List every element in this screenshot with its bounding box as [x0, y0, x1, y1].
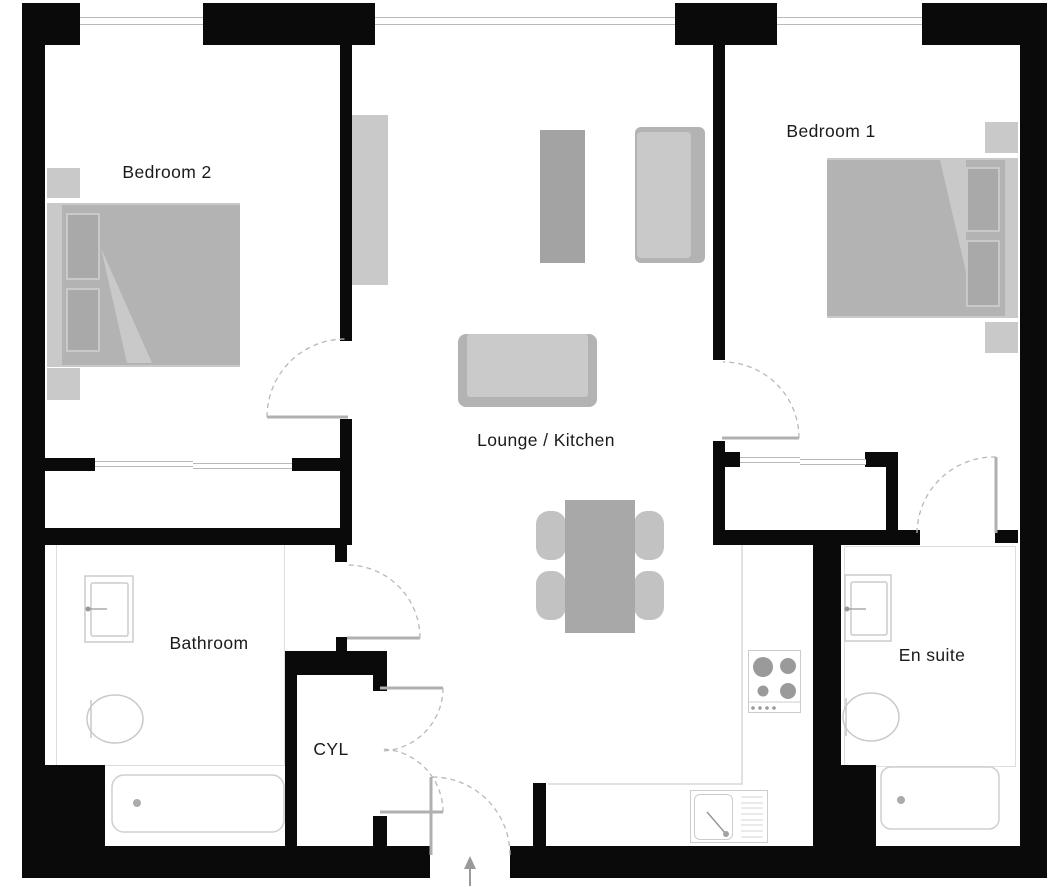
bedside-table [985, 122, 1018, 153]
entry-arrow-head [464, 856, 476, 869]
bedside-table [47, 168, 80, 198]
wall-top-pier [675, 3, 777, 45]
wall-void-right [886, 467, 898, 530]
pillow [966, 167, 1000, 232]
wall-left [22, 3, 45, 765]
pillow [966, 240, 1000, 307]
window [777, 17, 922, 25]
internal-window [800, 459, 866, 465]
dining-table [565, 500, 635, 633]
bedside-table [47, 368, 80, 400]
cyl-door-swing-lower [380, 749, 443, 812]
internal-window [740, 457, 800, 463]
bathtub-drain [133, 799, 141, 807]
wall-top-corner-left [22, 3, 80, 45]
wall-cyl-left [285, 675, 297, 856]
wall-cyl-top [285, 651, 387, 675]
bathtub [112, 775, 284, 832]
sofa-seat [467, 334, 588, 397]
wall-entrance-stub [533, 783, 546, 846]
floor-plan: Bedroom 2 Bedroom 1 Lounge / Kitchen Bat… [0, 0, 1062, 887]
wall-kitchen-ensuite-block [813, 765, 876, 846]
pillow [66, 288, 100, 352]
room-label-bathroom: Bathroom [129, 633, 289, 654]
side-sofa-seat [637, 132, 691, 258]
bedroom1-door-swing [723, 362, 799, 438]
wall-window-pier [292, 458, 340, 471]
room-label-cyl: CYL [291, 739, 371, 760]
wall-kitchen-ensuite [813, 538, 841, 765]
bathtub [881, 767, 999, 829]
hob [748, 650, 801, 713]
wall-bathroom-top [30, 528, 350, 545]
bathroom-floor-outline [56, 544, 285, 766]
wall-bedroom2-lower [340, 419, 352, 545]
bedside-table [985, 322, 1018, 353]
wall-void-left [713, 441, 725, 533]
bedroom2-door-swing [267, 339, 345, 417]
bathroom-door-swing [347, 565, 420, 638]
wall-bottom [510, 846, 1047, 878]
wall-bedroom2-lounge [340, 45, 352, 341]
bathtub-drain [897, 796, 905, 804]
internal-window [95, 461, 193, 467]
wall-bedroom1-lounge [713, 45, 725, 360]
entrance-door-swing [431, 777, 510, 855]
wall-right [1020, 3, 1047, 856]
tv-unit [540, 130, 585, 263]
wall-ensuite-door-nub [995, 530, 1018, 543]
dining-chair [634, 511, 664, 560]
sink-bowl [694, 794, 733, 840]
dining-chair [536, 511, 566, 560]
room-label-bedroom1: Bedroom 1 [751, 121, 911, 142]
room-label-ensuite: En suite [872, 645, 992, 666]
wall-void-pier [725, 452, 740, 467]
wall-void-pier [865, 452, 898, 467]
ensuite-door-swing [917, 457, 996, 533]
pillow [66, 213, 100, 280]
wall-window-pier [45, 458, 95, 471]
window [375, 17, 675, 25]
wall-bathroom-door-nub [336, 637, 347, 651]
dining-chair [634, 571, 664, 620]
wall-cyl-right-lower [373, 816, 387, 856]
window [80, 17, 203, 25]
room-label-lounge-kitchen: Lounge / Kitchen [446, 430, 646, 451]
wall-top-pier [203, 3, 375, 45]
internal-window [193, 463, 292, 469]
dining-chair [536, 571, 566, 620]
wall-bottom [22, 846, 430, 878]
wall-bathroom-door-stub [335, 545, 347, 562]
room-label-bedroom2: Bedroom 2 [87, 162, 247, 183]
cyl-door-swing-upper [380, 688, 443, 751]
wardrobe [352, 115, 388, 285]
wall-cyl-right-upper [373, 675, 387, 691]
